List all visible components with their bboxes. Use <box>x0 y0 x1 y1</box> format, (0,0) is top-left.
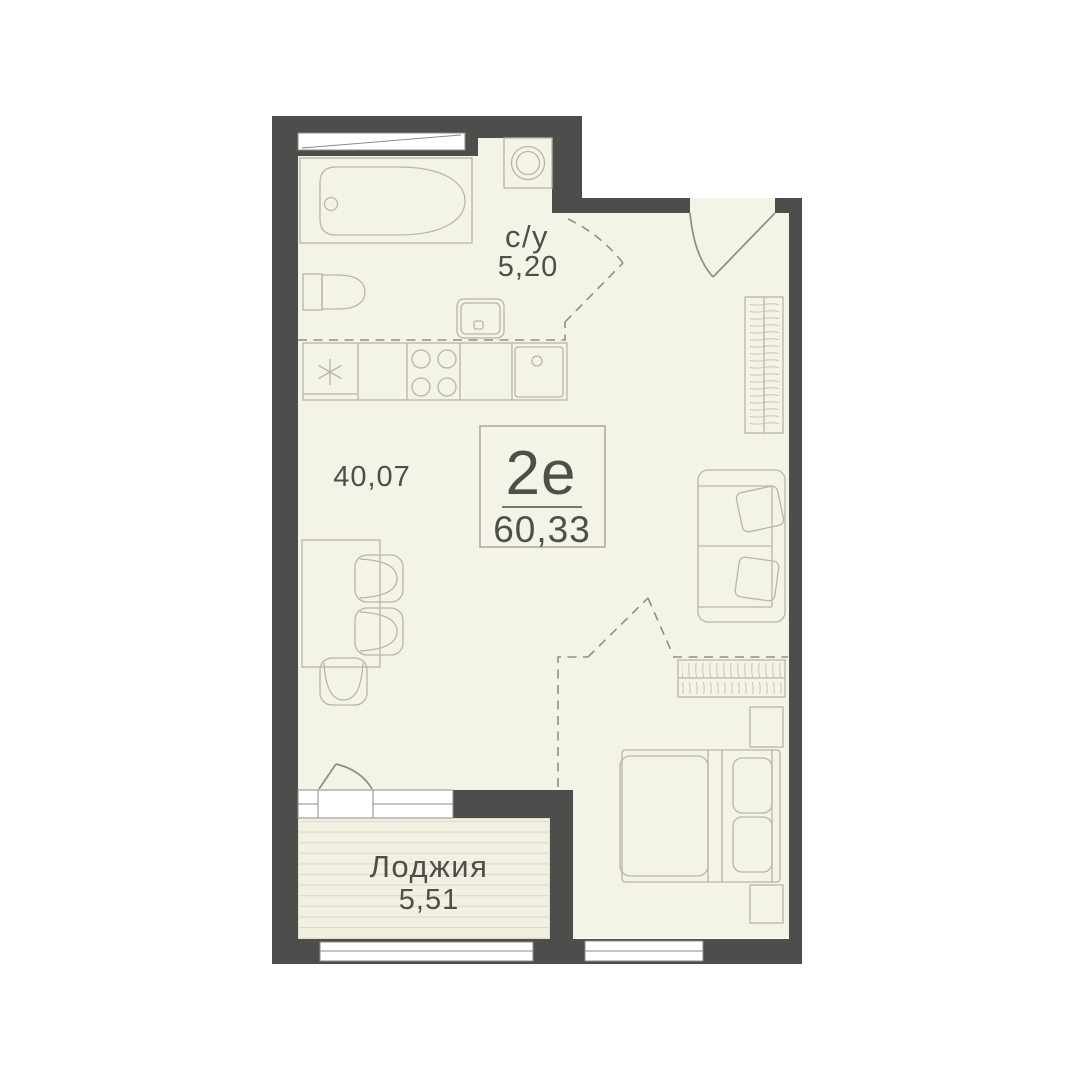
wall-entry-top <box>582 198 690 213</box>
window-loggia-bottom <box>320 942 533 961</box>
wall-step <box>552 116 582 213</box>
floor-plan: с/у 5,20 40,07 Лоджия 5,51 2е 60,33 <box>0 0 1080 1080</box>
bathroom-area: 5,20 <box>498 251 558 283</box>
unit-total-area: 60,33 <box>493 509 591 550</box>
wall-left <box>272 116 298 964</box>
balcony-door-window-block <box>298 790 453 818</box>
wall-right <box>789 198 802 964</box>
wall-balcony-band <box>453 790 573 818</box>
wardrobe-bedroom <box>678 660 785 697</box>
unit-badge: 2е 60,33 <box>480 426 605 550</box>
loggia-area: 5,51 <box>399 884 459 916</box>
window-bedroom-bottom <box>585 941 703 961</box>
loggia-label: Лоджия <box>370 849 489 884</box>
bathroom-label: с/у <box>505 219 549 254</box>
unit-type: 2е <box>506 439 577 508</box>
window-top <box>298 133 465 150</box>
living-kitchen-area: 40,07 <box>333 461 411 493</box>
wardrobe-hallway <box>745 297 783 433</box>
floor-plan-canvas: с/у 5,20 40,07 Лоджия 5,51 2е 60,33 <box>0 0 1080 1080</box>
